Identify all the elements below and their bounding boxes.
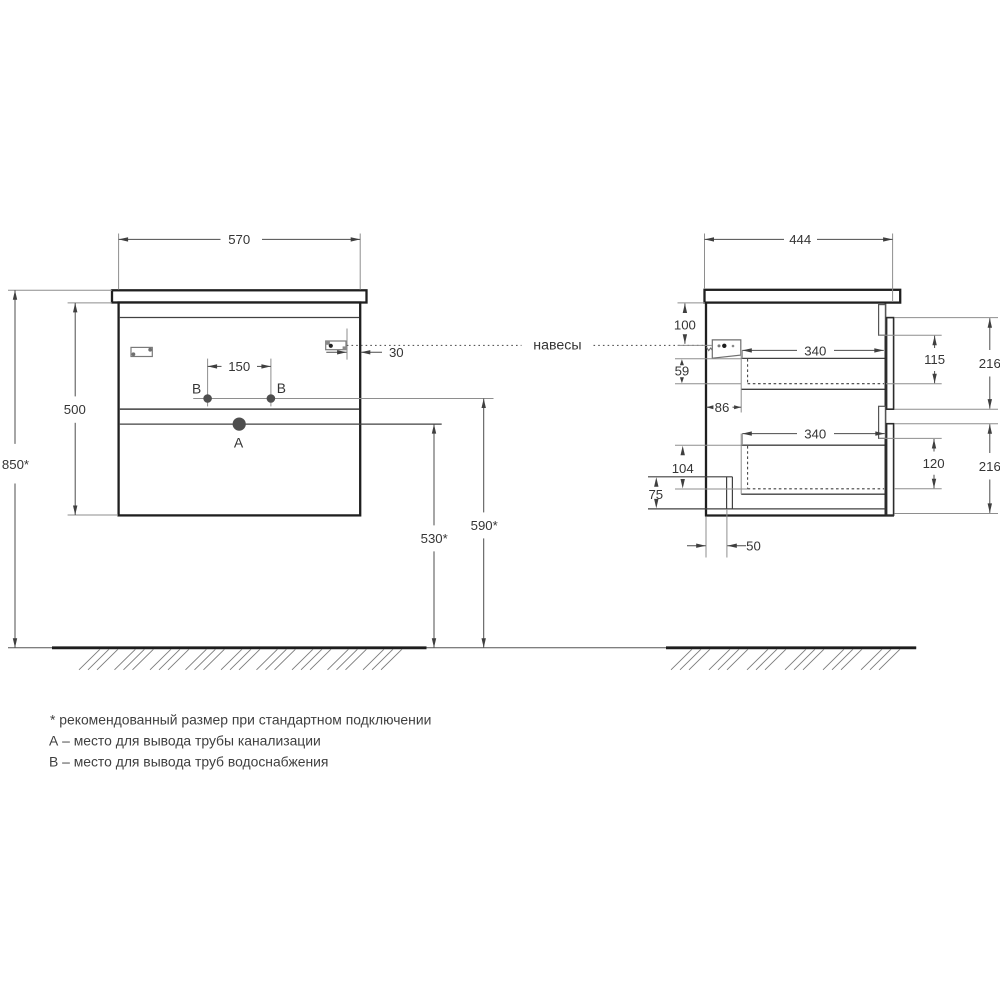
svg-text:216: 216 (979, 459, 1000, 474)
svg-text:216: 216 (979, 356, 1000, 371)
svg-text:340: 340 (804, 427, 826, 442)
svg-text:А – место для вывода трубы кан: А – место для вывода трубы канализации (49, 733, 321, 749)
svg-text:115: 115 (924, 352, 945, 367)
svg-text:530*: 530* (421, 531, 448, 546)
svg-text:А: А (234, 435, 244, 451)
svg-text:50: 50 (746, 538, 761, 553)
svg-text:850*: 850* (2, 457, 29, 472)
svg-text:* рекомендованный размер при с: * рекомендованный размер при стандартном… (50, 712, 431, 728)
svg-text:104: 104 (672, 461, 694, 476)
svg-text:навесы: навесы (533, 337, 581, 353)
svg-text:В – место для вывода труб водо: В – место для вывода труб водоснабжения (49, 753, 328, 769)
svg-text:500: 500 (64, 402, 86, 417)
svg-text:86: 86 (715, 400, 730, 415)
svg-text:В: В (192, 382, 201, 397)
svg-text:75: 75 (648, 487, 663, 502)
svg-text:100: 100 (674, 317, 696, 332)
svg-text:В: В (277, 381, 286, 396)
svg-text:30: 30 (389, 345, 404, 360)
svg-text:150: 150 (228, 359, 250, 374)
svg-text:340: 340 (804, 343, 826, 358)
svg-text:570: 570 (228, 232, 250, 247)
svg-text:120: 120 (923, 456, 945, 471)
svg-text:590*: 590* (471, 518, 498, 533)
svg-text:444: 444 (789, 232, 811, 247)
svg-text:59: 59 (675, 364, 690, 379)
